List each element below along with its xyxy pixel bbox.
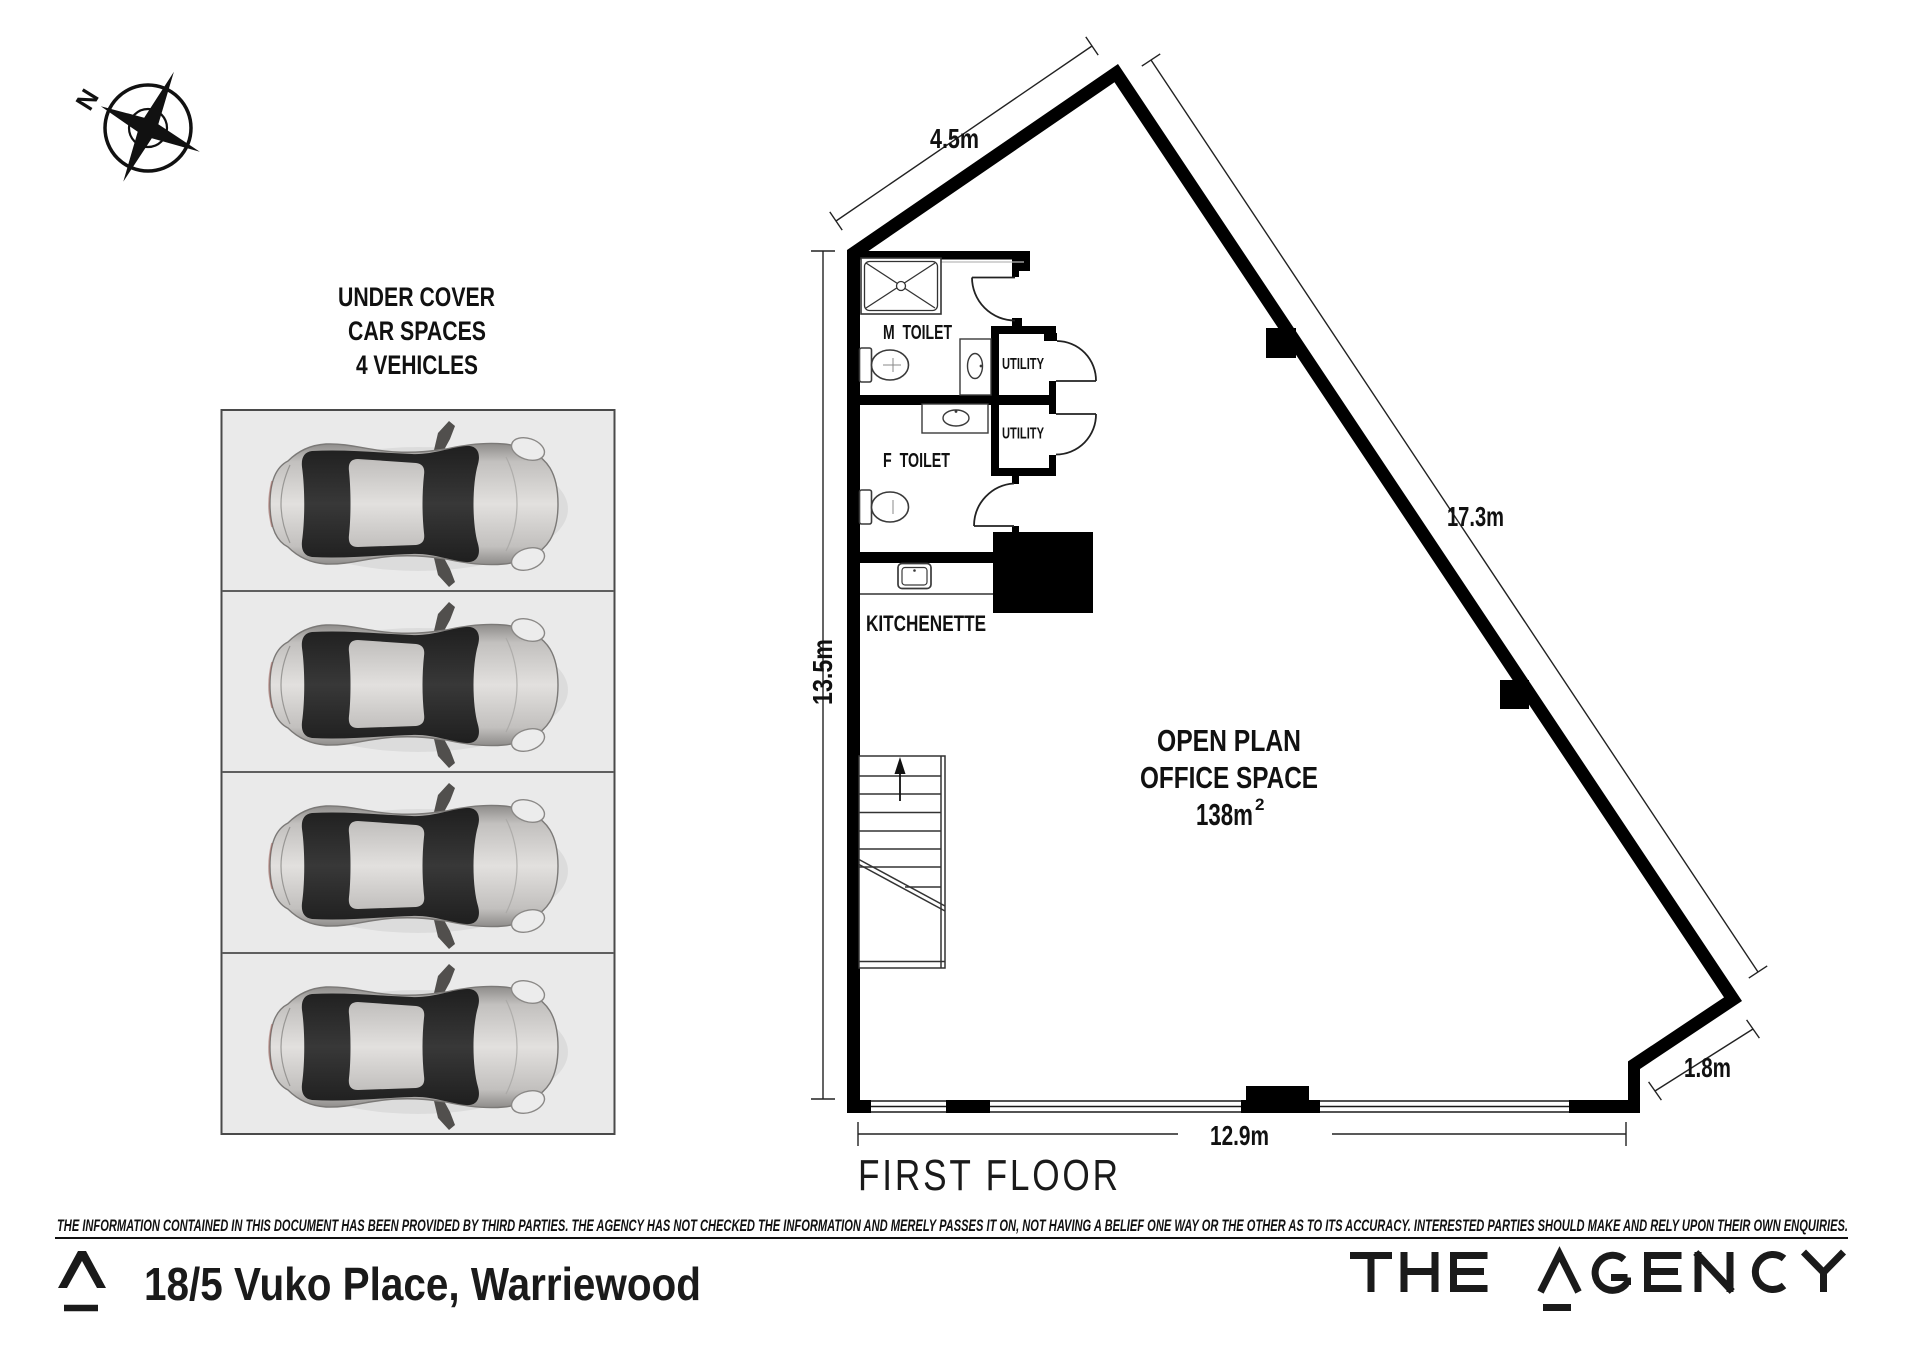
svg-text:2: 2 bbox=[1255, 795, 1264, 814]
svg-text:FIRST FLOOR: FIRST FLOOR bbox=[858, 1151, 1121, 1200]
svg-text:UNDER COVER: UNDER COVER bbox=[338, 282, 495, 312]
svg-text:1.8m: 1.8m bbox=[1684, 1052, 1731, 1083]
svg-text:138m: 138m bbox=[1196, 798, 1253, 832]
svg-text:UTILITY: UTILITY bbox=[1002, 356, 1044, 373]
svg-text:OFFICE SPACE: OFFICE SPACE bbox=[1140, 761, 1318, 795]
svg-text:18/5 Vuko Place, Warriewood: 18/5 Vuko Place, Warriewood bbox=[144, 1260, 701, 1311]
svg-text:KITCHENETTE: KITCHENETTE bbox=[866, 611, 986, 636]
svg-text:CAR SPACES: CAR SPACES bbox=[348, 316, 486, 346]
svg-text:M TOILET: M TOILET bbox=[883, 321, 952, 344]
svg-text:4 VEHICLES: 4 VEHICLES bbox=[356, 350, 478, 380]
svg-text:UTILITY: UTILITY bbox=[1002, 426, 1044, 443]
svg-text:12.9m: 12.9m bbox=[1210, 1120, 1269, 1151]
svg-text:THE INFORMATION CONTAINED IN T: THE INFORMATION CONTAINED IN THIS DOCUME… bbox=[57, 1216, 1848, 1235]
svg-text:4.5m: 4.5m bbox=[930, 123, 979, 154]
svg-text:13.5m: 13.5m bbox=[807, 639, 838, 705]
svg-text:17.3m: 17.3m bbox=[1447, 501, 1504, 532]
svg-text:OPEN PLAN: OPEN PLAN bbox=[1157, 724, 1301, 758]
svg-text:F TOILET: F TOILET bbox=[883, 449, 950, 472]
